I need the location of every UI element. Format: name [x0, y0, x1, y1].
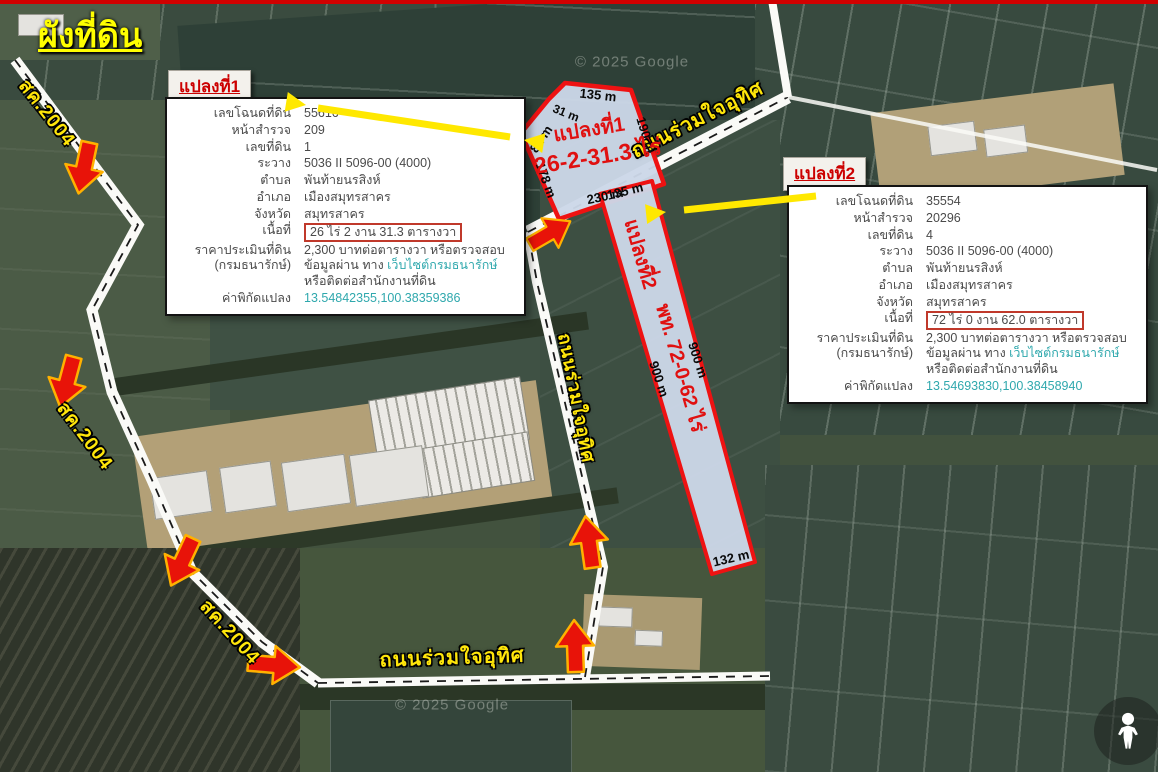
info-row: อำเภอเมืองสมุทรสาคร — [795, 278, 1136, 294]
field-label: ราคาประเมินที่ดิน(กรมธนารักษ์) — [795, 331, 913, 378]
field-label: จังหวัด — [173, 207, 291, 223]
field-value: พันท้ายนรสิงห์ — [304, 173, 514, 189]
field-value: เมืองสมุทรสาคร — [926, 278, 1136, 294]
field-value: 20296 — [926, 211, 1136, 227]
info-row: หน้าสำรวจ209 — [173, 123, 514, 139]
info-row-coord: ค่าพิกัดแปลง13.54842355,100.38359386 — [173, 291, 514, 307]
field-label: ค่าพิกัดแปลง — [795, 379, 913, 395]
pegman-icon[interactable] — [1094, 697, 1158, 765]
field-label: เลขโฉนดที่ดิน — [795, 194, 913, 210]
google-watermark: © 2025 Google — [575, 54, 689, 71]
field-value: 4 — [926, 228, 1136, 244]
field-label: เลขที่ดิน — [795, 228, 913, 244]
field-label: เลขโฉนดที่ดิน — [173, 106, 291, 122]
info-row: หน้าสำรวจ20296 — [795, 211, 1136, 227]
plot2-info-box: เลขโฉนดที่ดิน35554 หน้าสำรวจ20296 เลขที่… — [787, 185, 1148, 404]
field-value: 5036 II 5096-00 (4000) — [304, 156, 514, 172]
field-value: สมุทรสาคร — [304, 207, 514, 223]
field-label: อำเภอ — [795, 278, 913, 294]
land-plan-map: ถนนร่วมใจอุทิศ ถนนร่วมใจอุทิศ ถนนร่วมใจอ… — [0, 0, 1158, 772]
field-label: ตำบล — [795, 261, 913, 277]
info-row: ระวาง5036 II 5096-00 (4000) — [173, 156, 514, 172]
field-label: เลขที่ดิน — [173, 140, 291, 156]
info-row: จังหวัดสมุทรสาคร — [173, 207, 514, 223]
field-value: 5036 II 5096-00 (4000) — [926, 244, 1136, 260]
field-label: อำเภอ — [173, 190, 291, 206]
info-row: เลขโฉนดที่ดิน55616 — [173, 106, 514, 122]
field-value: 2,300 บาทต่อตารางวา หรือตรวจสอบข้อมูลผ่า… — [926, 331, 1136, 378]
info-row: เลขที่ดิน1 — [173, 140, 514, 156]
info-row-price: ราคาประเมินที่ดิน(กรมธนารักษ์) 2,300 บาท… — [173, 243, 514, 290]
google-watermark: © 2025 Google — [395, 697, 509, 714]
info-row-coord: ค่าพิกัดแปลง13.54693830,100.38458940 — [795, 379, 1136, 395]
treasury-website-link[interactable]: เว็บไซต์กรมธนารักษ์ — [387, 258, 497, 272]
field-label: หน้าสำรวจ — [795, 211, 913, 227]
field-value: สมุทรสาคร — [926, 295, 1136, 311]
field-value: 26 ไร่ 2 งาน 31.3 ตารางวา — [304, 223, 514, 241]
area-highlight: 26 ไร่ 2 งาน 31.3 ตารางวา — [304, 223, 462, 241]
info-row: อำเภอเมืองสมุทรสาคร — [173, 190, 514, 206]
field-value: เมืองสมุทรสาคร — [304, 190, 514, 206]
treasury-website-link[interactable]: เว็บไซต์กรมธนารักษ์ — [1009, 346, 1119, 360]
field-value: 209 — [304, 123, 514, 139]
person-glyph — [1108, 709, 1148, 753]
info-row: ตำบลพันท้ายนรสิงห์ — [795, 261, 1136, 277]
plot1-info-box: เลขโฉนดที่ดิน55616 หน้าสำรวจ209 เลขที่ดิ… — [165, 97, 526, 316]
info-row: จังหวัดสมุทรสาคร — [795, 295, 1136, 311]
field-value: 35554 — [926, 194, 1136, 210]
field-label: ระวาง — [173, 156, 291, 172]
field-value: 2,300 บาทต่อตารางวา หรือตรวจสอบข้อมูลผ่า… — [304, 243, 514, 290]
field-label: หน้าสำรวจ — [173, 123, 291, 139]
field-label: จังหวัด — [795, 295, 913, 311]
field-label: ตำบล — [173, 173, 291, 189]
info-row-price: ราคาประเมินที่ดิน(กรมธนารักษ์) 2,300 บาท… — [795, 331, 1136, 378]
area-highlight: 72 ไร่ 0 งาน 62.0 ตารางวา — [926, 311, 1084, 329]
info-row: เลขที่ดิน4 — [795, 228, 1136, 244]
road-label-ruamjai-bottom: ถนนร่วมใจอุทิศ — [379, 638, 525, 675]
field-label: เนื้อที่ — [173, 223, 291, 241]
info-row: ตำบลพันท้ายนรสิงห์ — [173, 173, 514, 189]
info-row: ระวาง5036 II 5096-00 (4000) — [795, 244, 1136, 260]
field-label: เนื้อที่ — [795, 311, 913, 329]
field-value: 1 — [304, 140, 514, 156]
coordinates-link[interactable]: 13.54842355,100.38359386 — [304, 291, 514, 307]
info-row: เลขโฉนดที่ดิน35554 — [795, 194, 1136, 210]
info-row-area: เนื้อที่26 ไร่ 2 งาน 31.3 ตารางวา — [173, 223, 514, 241]
field-value: 55616 — [304, 106, 514, 122]
field-value: พันท้ายนรสิงห์ — [926, 261, 1136, 277]
field-label: ค่าพิกัดแปลง — [173, 291, 291, 307]
top-border-line — [0, 0, 1158, 4]
coordinates-link[interactable]: 13.54693830,100.38458940 — [926, 379, 1136, 395]
info-row-area: เนื้อที่72 ไร่ 0 งาน 62.0 ตารางวา — [795, 311, 1136, 329]
page-title: ผังที่ดิน — [38, 8, 142, 62]
field-label: ระวาง — [795, 244, 913, 260]
field-label: ราคาประเมินที่ดิน(กรมธนารักษ์) — [173, 243, 291, 290]
field-value: 72 ไร่ 0 งาน 62.0 ตารางวา — [926, 311, 1136, 329]
